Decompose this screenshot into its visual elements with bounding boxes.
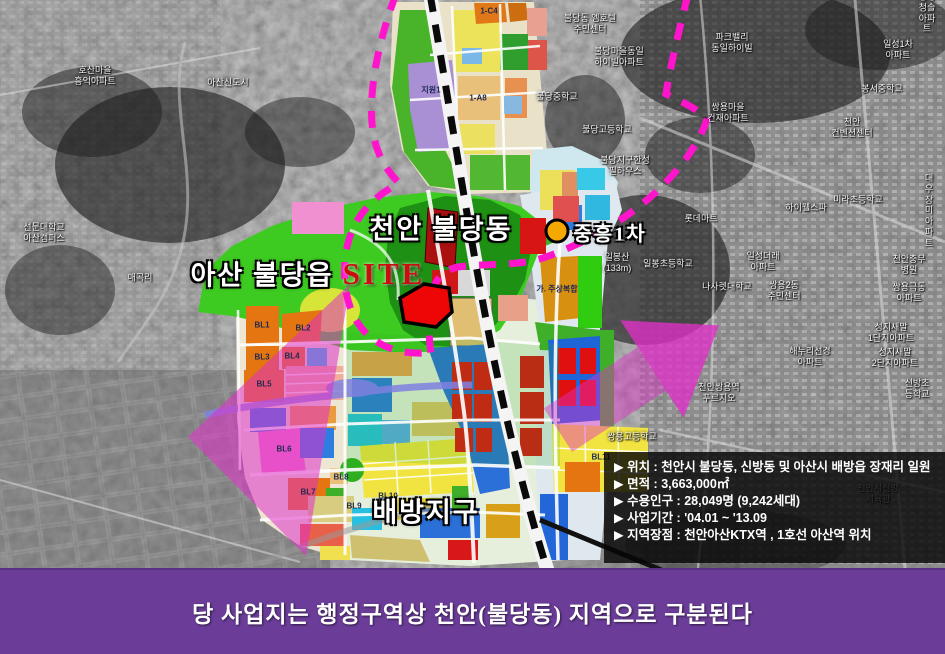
info-box-row-4: ▶ 지역장점 : 천안아산KTX역 , 1호선 아산역 위치 [614, 527, 935, 544]
info-box-row-2: ▶ 수용인구 : 28,049명 (9,242세대) [614, 493, 935, 510]
caption-text: 당 사업지는 행정구역상 천안(불당동) 지역으로 구분된다 [192, 595, 753, 629]
info-box-row-1: ▶ 면적 : 3,663,000㎡ [614, 476, 935, 493]
info-box-row-0: ▶ 위치 : 천안시 불당동, 신방동 및 아산시 배방읍 장재리 일원 [614, 459, 935, 476]
project-info-box: ▶ 위치 : 천안시 불당동, 신방동 및 아산시 배방읍 장재리 일원▶ 면적… [604, 452, 945, 563]
caption-banner: 당 사업지는 행정구역상 천안(불당동) 지역으로 구분된다 [0, 568, 945, 654]
jungheung-marker-dot [546, 220, 568, 242]
info-box-row-3: ▶ 사업기간 : '04.01 ~ '13.09 [614, 510, 935, 527]
site-location-slide: 호산마을 흥익아파트아산신도시선문대학교 아산캠퍼스매곡리불당동 엠호텔 주민센… [0, 0, 945, 654]
green-wash-overlay [345, 332, 560, 470]
